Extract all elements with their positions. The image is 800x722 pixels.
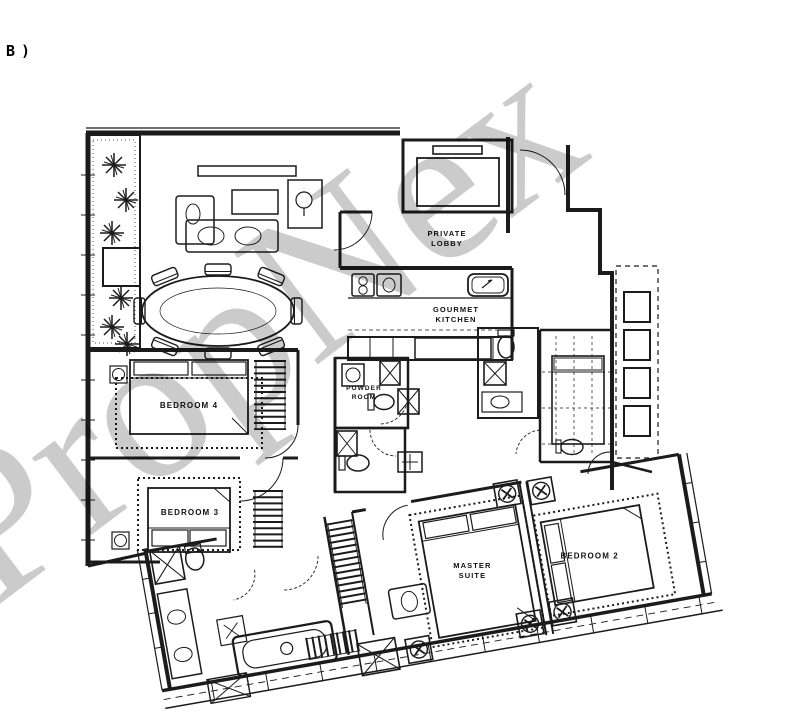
hanger-rack-icon [307,640,358,649]
toilet-icon [556,440,583,455]
door-arc [284,556,318,590]
bed-icon [130,360,248,434]
sink-icon [468,274,508,296]
plant-icon [115,332,139,356]
basin-icon [342,364,364,386]
toilet-icon [339,455,369,471]
room-label-powder-room: ROOM [352,394,377,401]
coffee-table-icon [232,190,278,214]
basin-icon [398,452,422,472]
door-arc [378,505,413,540]
door-arc [229,570,259,600]
room-label-gourmet-kitchen: KITCHEN [435,315,476,324]
living-room [176,166,322,252]
walls-lower [137,453,713,703]
powder-room: POWDER ROOM [335,358,408,428]
hob-icon [352,274,401,296]
room-label-master-suite: MASTER [453,561,491,570]
bedroom-2: BEDROOM 2 [533,494,675,616]
single-bed-icon [552,356,604,444]
dining-table-icon [142,276,294,346]
basin-icon [482,392,522,412]
room-label-private-lobby: PRIVATE [427,229,466,238]
plant-icon [100,315,124,339]
rug [116,378,262,448]
door-arc [240,458,283,501]
ornament-icon [110,366,127,383]
ac-box-icon [624,330,650,360]
ornament-icon [112,532,129,549]
plant-icon [102,153,126,177]
utility-room [516,336,610,474]
room-label-bedroom-3: BEDROOM 3 [161,508,219,517]
upper-wing: PRIVATE LOBBY [81,128,658,590]
ac-box-icon [624,406,650,436]
room-label-master-suite: SUITE [459,571,487,580]
hanger-rack-icon [339,521,354,606]
room-label-gourmet-kitchen: GOURMET [433,305,479,314]
bedroom-4: BEDROOM 4 [110,360,298,458]
sofa-back-icon [198,166,296,176]
floor-plan: MASTER SUITE BEDROOM 2 [0,0,800,722]
plant-icon [100,221,124,245]
room-label-private-lobby: LOBBY [431,239,463,248]
floor-plan-page: PropNex B) [0,0,800,722]
chair-icon [205,264,231,275]
chair-icon [151,267,179,287]
ceiling-fan-icon [527,477,555,505]
dining-area [134,264,302,359]
toilet-icon [183,544,205,572]
balcony-planter [88,135,140,356]
page-label: B) [6,42,36,60]
private-lift [403,140,512,212]
walk-in-wardrobe [286,505,435,660]
kitchen-island-icon [348,337,512,360]
plant-icon [109,286,133,310]
door-arc [516,430,540,454]
sofa-icon [186,220,278,252]
planter-box [103,248,140,286]
gourmet-kitchen: GOURMET KITCHEN [348,274,512,360]
walls-upper [81,128,652,566]
lift-icon [417,158,499,206]
dresser-icon [388,583,431,619]
chair-icon [257,267,285,287]
private-lobby: PRIVATE LOBBY [334,150,565,250]
room-label-bedroom-4: BEDROOM 4 [160,401,218,410]
ac-box-icon [624,368,650,398]
door-arc [370,430,396,456]
shower-tray-icon [484,362,506,385]
console-icon [288,180,322,228]
door-arc [520,150,565,195]
ac-ledge [616,266,658,458]
bedroom-3: BEDROOM 3 [112,458,283,552]
bathroom-right [478,328,538,418]
room-label-powder-room: POWDER [346,385,382,392]
plant-icon [114,188,138,212]
ac-box-icon [624,292,650,322]
room-label-bedroom-2: BEDROOM 2 [560,551,618,560]
chair-icon [291,298,302,324]
